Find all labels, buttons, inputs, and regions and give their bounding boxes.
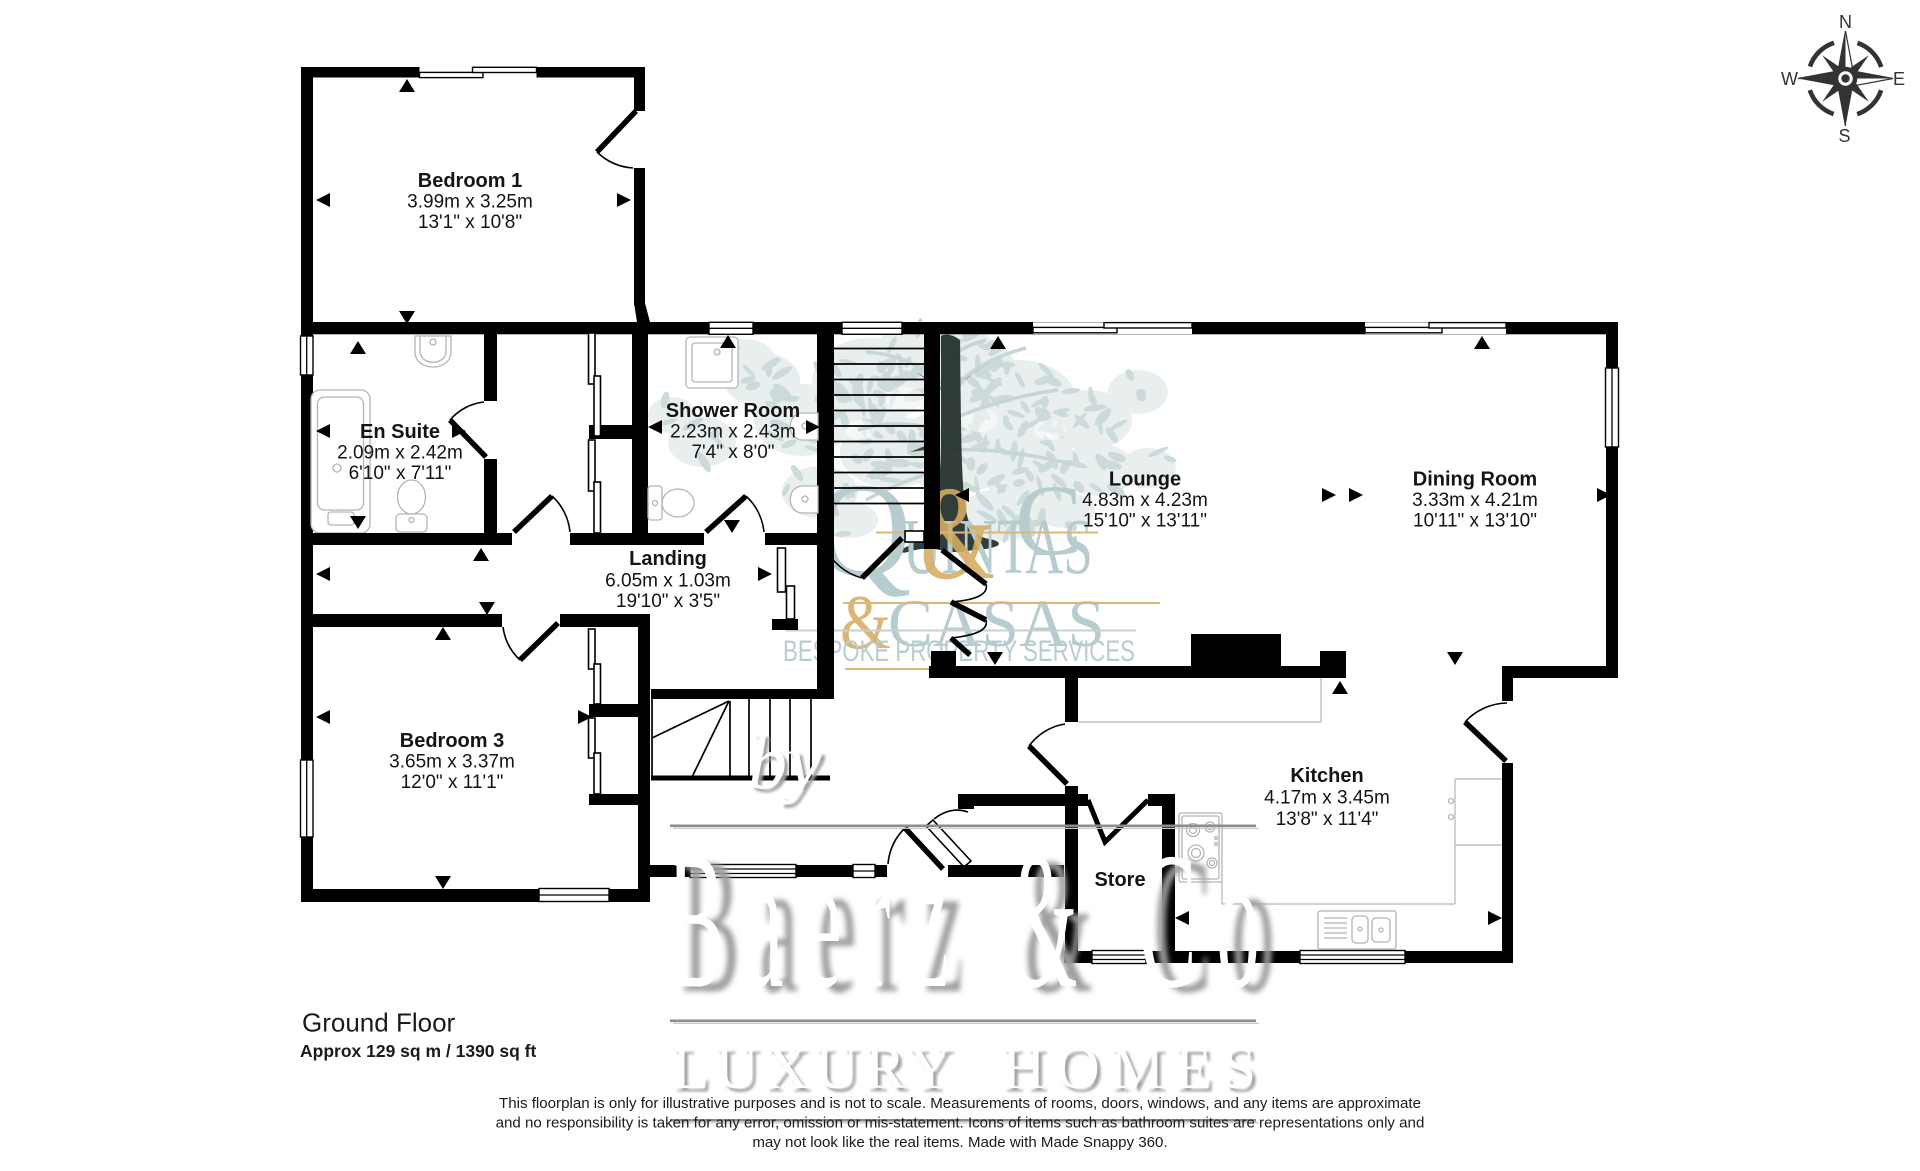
svg-text:Kitchen: Kitchen xyxy=(1290,765,1363,787)
svg-text:W: W xyxy=(1781,69,1798,89)
svg-text:3.65m x 3.37m: 3.65m x 3.37m xyxy=(389,752,515,773)
svg-text:13'1" x 10'8": 13'1" x 10'8" xyxy=(418,212,522,233)
svg-text:19'10" x 3'5": 19'10" x 3'5" xyxy=(616,591,720,612)
svg-text:15'10" x 13'11": 15'10" x 13'11" xyxy=(1083,511,1207,532)
svg-text:Baerz & Co: Baerz & Co xyxy=(667,812,1280,1029)
svg-text:En Suite: En Suite xyxy=(360,421,440,443)
svg-text:This floorplan is only for ill: This floorplan is only for illustrative … xyxy=(499,1095,1421,1112)
svg-text:E: E xyxy=(1893,69,1905,89)
svg-text:6'10" x 7'11": 6'10" x 7'11" xyxy=(349,463,452,484)
svg-text:N: N xyxy=(1839,12,1852,32)
svg-text:S: S xyxy=(1838,126,1850,146)
svg-text:6.05m x 1.03m: 6.05m x 1.03m xyxy=(605,571,731,592)
svg-text:Dining Room: Dining Room xyxy=(1413,469,1537,491)
svg-text:Bedroom 1: Bedroom 1 xyxy=(418,170,522,192)
svg-text:may not look like the real ite: may not look like the real items. Made w… xyxy=(752,1134,1167,1151)
svg-text:BESPOKE PROPERTY SERVICES: BESPOKE PROPERTY SERVICES xyxy=(783,635,1135,668)
svg-text:3.33m x 4.21m: 3.33m x 4.21m xyxy=(1412,490,1538,511)
svg-text:10'11" x 13'10": 10'11" x 13'10" xyxy=(1413,511,1537,532)
svg-text:3.99m x 3.25m: 3.99m x 3.25m xyxy=(407,192,533,213)
svg-text:Lounge: Lounge xyxy=(1109,469,1181,491)
svg-text:4.17m x 3.45m: 4.17m x 3.45m xyxy=(1264,788,1390,809)
svg-text:2.09m x 2.42m: 2.09m x 2.42m xyxy=(337,443,463,464)
svg-text:Bedroom 3: Bedroom 3 xyxy=(400,730,504,752)
svg-text:Approx 129 sq m / 1390 sq ft: Approx 129 sq m / 1390 sq ft xyxy=(300,1041,537,1061)
svg-text:Ground Floor: Ground Floor xyxy=(302,1008,456,1038)
svg-text:Landing: Landing xyxy=(629,548,707,570)
svg-text:by: by xyxy=(748,718,822,805)
svg-text:7'4" x 8'0": 7'4" x 8'0" xyxy=(691,442,774,463)
svg-text:13'8" x 11'4": 13'8" x 11'4" xyxy=(1276,809,1379,830)
svg-text:12'0" x 11'1": 12'0" x 11'1" xyxy=(401,772,504,793)
svg-text:C: C xyxy=(1015,464,1082,576)
svg-text:2.23m x 2.43m: 2.23m x 2.43m xyxy=(670,422,796,443)
svg-text:Shower Room: Shower Room xyxy=(666,400,800,422)
svg-text:4.83m x 4.23m: 4.83m x 4.23m xyxy=(1082,490,1208,511)
svg-text:and no responsibility is taken: and no responsibility is taken for any e… xyxy=(496,1115,1425,1132)
